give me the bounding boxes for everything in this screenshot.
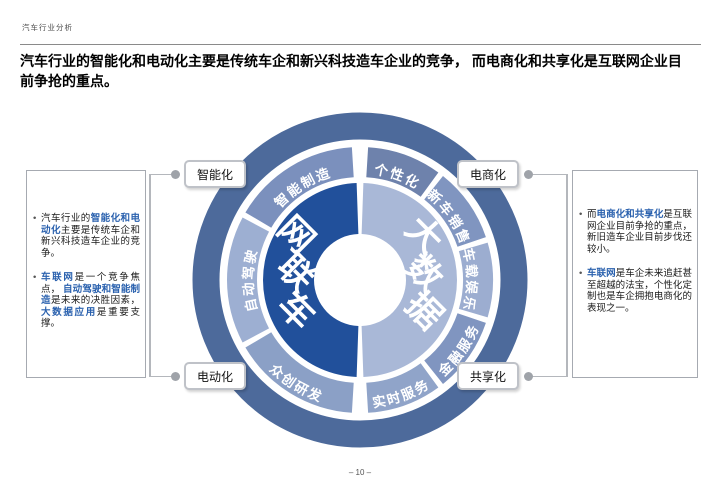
bullet-text: 汽车行业的智能化和电动化主要是传统车企和新兴科技造车企业的竞争。 (41, 213, 140, 259)
bullet-item: •而电商化和共享化是互联网企业目前争抢的重点，新旧造车企业目前步伐还较小。 (579, 209, 692, 255)
callout-sharing: 共享化 (457, 362, 519, 390)
right-bracket-line (566, 174, 568, 377)
connector-dot-top-left (171, 170, 180, 179)
bullet-text: 车联网是车企未来追赶甚至超越的法宝，个性化定制也是车企拥抱电商化的表现之一。 (587, 268, 692, 314)
bullet-item: •汽车行业的智能化和电动化主要是传统车企和新兴科技造车企业的竞争。 (33, 213, 140, 259)
bullet-text: 而电商化和共享化是互联网企业目前争抢的重点，新旧造车企业目前步伐还较小。 (587, 209, 692, 255)
bullet-marker: • (33, 272, 41, 330)
right-bullet-list: •而电商化和共享化是互联网企业目前争抢的重点，新旧造车企业目前步伐还较小。•车联… (573, 171, 697, 314)
right-bottom-connector-line (529, 376, 567, 378)
page-header: 汽车行业分析 (22, 22, 73, 33)
slide-title: 汽车行业的智能化和电动化主要是传统车企和新兴科技造车企业的竞争， 而电商化和共享… (20, 52, 684, 92)
bullet-item: •车联网是车企未来追赶甚至超越的法宝，个性化定制也是车企拥抱电商化的表现之一。 (579, 268, 692, 314)
bullet-marker: • (579, 209, 587, 255)
left-bracket-line (149, 174, 151, 377)
right-top-connector-line (529, 174, 567, 176)
ring-segment-left-1 (227, 218, 269, 343)
page-number: – 10 – (0, 468, 720, 477)
left-text-panel: •汽车行业的智能化和电动化主要是传统车企和新兴科技造车企业的竞争。•车联网是一个… (26, 170, 146, 378)
callout-intelligence: 智能化 (184, 160, 246, 188)
bullet-marker: • (33, 213, 41, 259)
bullet-text: 车联网是一个竞争焦点， 自动驾驶和智能制造是未来的决胜因素， 大数据应用是重要支… (41, 272, 140, 330)
right-text-panel: •而电商化和共享化是互联网企业目前争抢的重点，新旧造车企业目前步伐还较小。•车联… (572, 170, 698, 378)
bullet-item: •车联网是一个竞争焦点， 自动驾驶和智能制造是未来的决胜因素， 大数据应用是重要… (33, 272, 140, 330)
callout-electrification: 电动化 (184, 362, 246, 390)
connector-dot-bottom-left (171, 372, 180, 381)
header-divider (20, 44, 701, 45)
left-bullet-list: •汽车行业的智能化和电动化主要是传统车企和新兴科技造车企业的竞争。•车联网是一个… (27, 171, 145, 330)
bullet-marker: • (579, 268, 587, 314)
callout-ecommerce: 电商化 (457, 160, 519, 188)
